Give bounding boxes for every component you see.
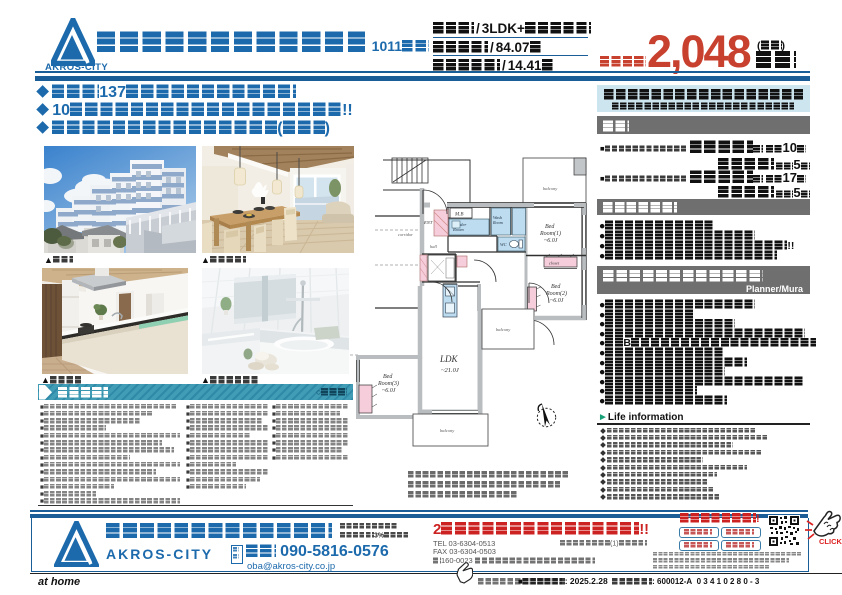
svg-text:Bed: Bed bbox=[383, 374, 393, 380]
svg-text:hall: hall bbox=[430, 244, 438, 249]
svg-text:LDK: LDK bbox=[439, 354, 459, 364]
svg-text:ENT: ENT bbox=[423, 220, 433, 225]
svg-text:M.B: M.B bbox=[454, 213, 463, 218]
svg-text:Room(3): Room(3) bbox=[377, 380, 399, 387]
svg-text:closet: closet bbox=[549, 261, 560, 266]
svg-text:balcony: balcony bbox=[496, 327, 510, 332]
svg-text:Room: Room bbox=[492, 220, 503, 225]
svg-text:Room(1): Room(1) bbox=[539, 230, 561, 237]
svg-text:~21.0J: ~21.0J bbox=[441, 367, 460, 374]
svg-text:CLICK: CLICK bbox=[819, 537, 842, 546]
svg-text:corridor: corridor bbox=[398, 232, 413, 237]
svg-text:WC: WC bbox=[500, 242, 507, 247]
svg-text:~6.0J: ~6.0J bbox=[382, 388, 396, 394]
svg-text:Bed: Bed bbox=[545, 224, 555, 230]
svg-text:balcony: balcony bbox=[440, 428, 454, 433]
svg-text:balcony: balcony bbox=[543, 186, 557, 191]
svg-text:Bed: Bed bbox=[551, 284, 561, 290]
svg-text:~6.0J: ~6.0J bbox=[550, 298, 564, 304]
svg-text:Room(2): Room(2) bbox=[545, 290, 567, 297]
svg-text:~6.0J: ~6.0J bbox=[544, 238, 558, 244]
